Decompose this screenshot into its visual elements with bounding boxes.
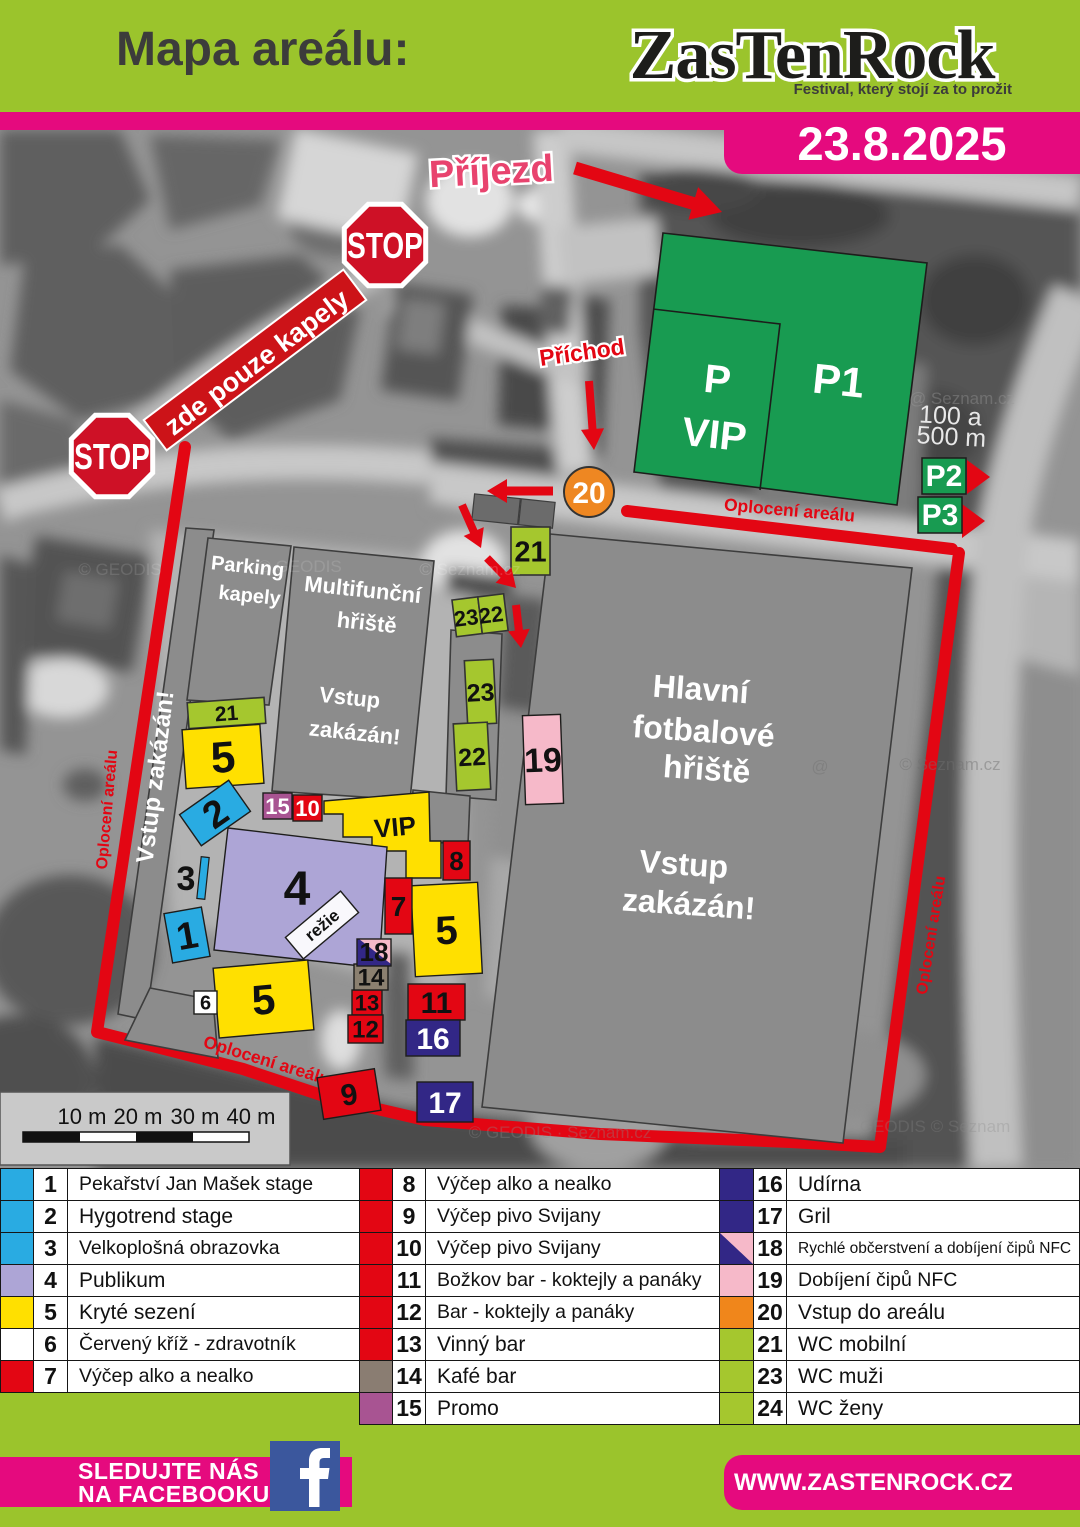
svg-text:22: 22: [457, 743, 486, 772]
svg-text:22: 22: [477, 601, 504, 629]
svg-text:20 m: 20 m: [114, 1104, 163, 1129]
svg-text:10: 10: [295, 796, 319, 821]
svg-text:18: 18: [360, 937, 389, 967]
svg-text:@: @: [811, 757, 828, 776]
svg-text:5: 5: [250, 975, 277, 1024]
svg-text:500 m: 500 m: [916, 421, 987, 453]
svg-text:8: 8: [449, 846, 463, 876]
svg-text:7: 7: [391, 891, 407, 922]
svg-text:VIP: VIP: [680, 410, 749, 460]
svg-text:P1: P1: [811, 355, 867, 407]
svg-text:6: 6: [200, 993, 211, 1015]
svg-text:20: 20: [572, 477, 605, 510]
svg-text:STOP: STOP: [74, 436, 150, 477]
svg-text:11: 11: [421, 987, 453, 1020]
svg-text:14: 14: [358, 965, 385, 992]
svg-text:STOP: STOP: [347, 225, 423, 266]
svg-text:© Seznam.cz: © Seznam.cz: [899, 755, 1000, 774]
svg-text:12: 12: [352, 1017, 379, 1044]
svg-text:P2: P2: [926, 460, 963, 493]
svg-text:30 m: 30 m: [171, 1104, 220, 1129]
svg-text:17: 17: [428, 1087, 461, 1120]
svg-text:10 m: 10 m: [58, 1104, 107, 1129]
svg-text:hřiště: hřiště: [662, 748, 751, 790]
svg-text:23: 23: [466, 678, 495, 707]
svg-text:4: 4: [284, 863, 311, 916]
svg-text:15: 15: [265, 794, 289, 819]
svg-text:Hlavní: Hlavní: [652, 668, 751, 711]
svg-text:Příjezd: Příjezd: [428, 148, 555, 196]
svg-text:19: 19: [523, 741, 562, 780]
svg-text:© GEODIS: © GEODIS: [258, 557, 341, 576]
svg-text:© Seznam.cz: © Seznam.cz: [419, 560, 520, 579]
svg-text:P: P: [702, 357, 733, 404]
svg-text:@ Seznam.cz: @ Seznam.cz: [909, 389, 1015, 408]
svg-text:5: 5: [434, 908, 459, 953]
svg-text:P3: P3: [922, 499, 959, 532]
svg-text:VIP: VIP: [373, 810, 417, 844]
svg-text:13: 13: [355, 990, 379, 1015]
svg-text:23: 23: [453, 604, 480, 632]
svg-text:16: 16: [416, 1023, 449, 1056]
svg-text:© GEODIS · Seznam.cz: © GEODIS · Seznam.cz: [469, 1123, 652, 1142]
svg-text:Vstup: Vstup: [638, 843, 729, 885]
svg-text:3: 3: [177, 860, 196, 898]
svg-text:© GEODIS: © GEODIS: [78, 560, 161, 579]
svg-text:GEODIS © Seznam: GEODIS © Seznam: [860, 1117, 1010, 1136]
svg-text:40 m: 40 m: [227, 1104, 276, 1129]
svg-text:21: 21: [214, 702, 239, 727]
svg-text:5: 5: [209, 733, 237, 784]
